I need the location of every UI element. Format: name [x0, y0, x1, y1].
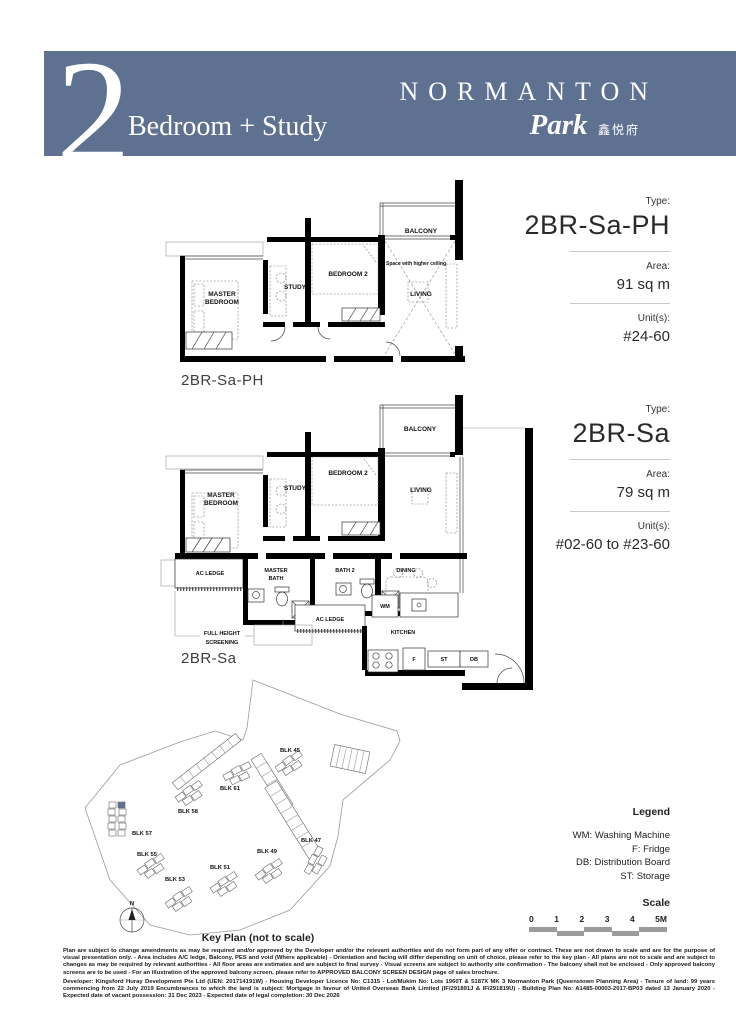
units-value: #24-60: [490, 328, 670, 345]
keyplan-title: Key Plan (not to scale): [168, 932, 348, 944]
room-label-bath2: BATH 2: [335, 568, 354, 574]
units-label: Unit(s):: [490, 313, 670, 324]
block-label-57: BLK 57: [132, 831, 152, 837]
wardrobe-hatch: [342, 522, 380, 535]
type-label: Type:: [490, 196, 670, 207]
room-label-kitchen: KITCHEN: [391, 630, 415, 636]
type-value: 2BR-Sa-PH: [490, 210, 670, 241]
room-label-study: STUDY: [284, 485, 307, 492]
floorplan-2br-sa-ph: MASTER BEDROOM STUDY BEDROOM 2 BALCONY S…: [160, 178, 480, 394]
scale-tick: 2: [579, 914, 584, 924]
room-label-living: LIVING: [410, 291, 432, 298]
scale-tick: 4: [630, 914, 635, 924]
block-label-49: BLK 49: [257, 849, 278, 855]
plan-caption-sa: 2BR-Sa: [181, 650, 237, 667]
legend-title: Legend: [573, 806, 670, 818]
block-45-buildings: [275, 750, 307, 779]
room-label-ac-ledge-2: AC LEDGE: [316, 617, 345, 623]
brand-chinese: 鑫悦府: [598, 123, 640, 137]
room-label-balcony: BALCONY: [405, 228, 438, 235]
unit-type-number: 2: [56, 38, 131, 188]
north-arrow-icon: N: [120, 901, 144, 932]
building-grid: [330, 744, 370, 773]
block-label-45: BLK 45: [280, 748, 301, 754]
wardrobe-hatch: [186, 538, 230, 552]
divider: [570, 459, 670, 460]
label-higher-ceiling: Space with higher ceiling: [386, 261, 446, 267]
label-db: DB: [470, 657, 478, 663]
scale-bar: [529, 927, 667, 938]
scale-title: Scale: [643, 897, 670, 909]
room-label-master-1: MASTER: [208, 291, 236, 298]
wardrobe-hatch: [186, 332, 232, 349]
block-53-buildings: [165, 886, 197, 915]
divider: [570, 303, 670, 304]
label-wm: WM: [380, 604, 390, 610]
wardrobe-hatch: [342, 308, 380, 321]
legend-item-db: DB: Distribution Board: [573, 856, 670, 870]
label-fhs-2: SCREENING: [206, 640, 239, 646]
scale-tick: 1: [554, 914, 559, 924]
header-band: 2 Bedroom + Study NORMANTON Park 鑫悦府: [44, 51, 736, 156]
room-label-ac-ledge-1: AC LEDGE: [196, 571, 225, 577]
legend: Legend WM: Washing Machine F: Fridge DB:…: [573, 806, 670, 883]
block-label-58: BLK 58: [178, 809, 199, 815]
scale-tick: 5M: [655, 914, 667, 924]
highlighted-unit: [118, 802, 125, 808]
room-label-bedroom2: BEDROOM 2: [328, 470, 368, 477]
block-label-61: BLK 61: [220, 786, 241, 792]
scale-tick: 3: [605, 914, 610, 924]
room-label-living: LIVING: [410, 487, 432, 494]
room-label-master-bath-2: BATH: [269, 576, 284, 582]
brand-logo: NORMANTON Park 鑫悦府: [399, 77, 648, 142]
room-label-master-1: MASTER: [207, 492, 235, 499]
brand-name: NORMANTON: [399, 77, 658, 107]
brand-subline: Park 鑫悦府: [399, 109, 640, 142]
plan-caption-ph: 2BR-Sa-PH: [181, 372, 264, 389]
divider: [570, 251, 670, 252]
scale-tick: 0: [529, 914, 534, 924]
divider: [570, 511, 670, 512]
area-label: Area:: [490, 261, 670, 272]
room-label-dining: DINING: [396, 568, 415, 574]
disclaimer-paragraph-1: Plan are subject to change amendments as…: [63, 948, 715, 977]
legend-item-st: ST: Storage: [573, 870, 670, 884]
brand-script: Park: [530, 109, 588, 141]
block-49-buildings: [255, 858, 287, 887]
keyplan-map: BLK 45 BLK 61 BLK 58 BLK 57 BLK 55 BLK 5…: [60, 672, 430, 957]
scale-ticks: 0 1 2 3 4 5M: [529, 914, 667, 924]
room-label-master-bath-1: MASTER: [264, 568, 287, 574]
room-label-balcony: BALCONY: [404, 426, 437, 433]
north-label: N: [130, 901, 134, 907]
legend-item-wm: WM: Washing Machine: [573, 829, 670, 843]
room-label-study: STUDY: [284, 284, 307, 291]
unit-type-subtitle: Bedroom + Study: [128, 111, 327, 143]
area-value: 91 sq m: [490, 276, 670, 293]
block-label-55: BLK 55: [137, 852, 158, 858]
block-label-53: BLK 53: [165, 877, 186, 883]
scale-widget: 0 1 2 3 4 5M: [529, 914, 667, 938]
block-61-buildings: [222, 761, 255, 788]
info-panel-ph: Type: 2BR-Sa-PH Area: 91 sq m Unit(s): #…: [490, 196, 670, 345]
terrace-strip: [265, 781, 321, 860]
block-label-47: BLK 47: [301, 838, 321, 844]
block-57-buildings: [108, 802, 126, 836]
room-label-master-2: BEDROOM: [204, 500, 238, 507]
room-label-master-2: BEDROOM: [205, 299, 239, 306]
disclaimer-paragraph-2: Developer: Kingsford Huray Development P…: [63, 979, 715, 1001]
room-label-bedroom2: BEDROOM 2: [328, 271, 368, 278]
disclaimer: Plan are subject to change amendments as…: [63, 948, 715, 1002]
block-51-buildings: [210, 871, 242, 900]
label-st: ST: [440, 657, 448, 663]
legend-item-f: F: Fridge: [573, 843, 670, 857]
brochure-page: 2 Bedroom + Study NORMANTON Park 鑫悦府 Typ…: [0, 0, 736, 1023]
block-label-51: BLK 51: [210, 865, 231, 871]
label-fhs-1: FULL HEIGHT: [204, 631, 241, 637]
